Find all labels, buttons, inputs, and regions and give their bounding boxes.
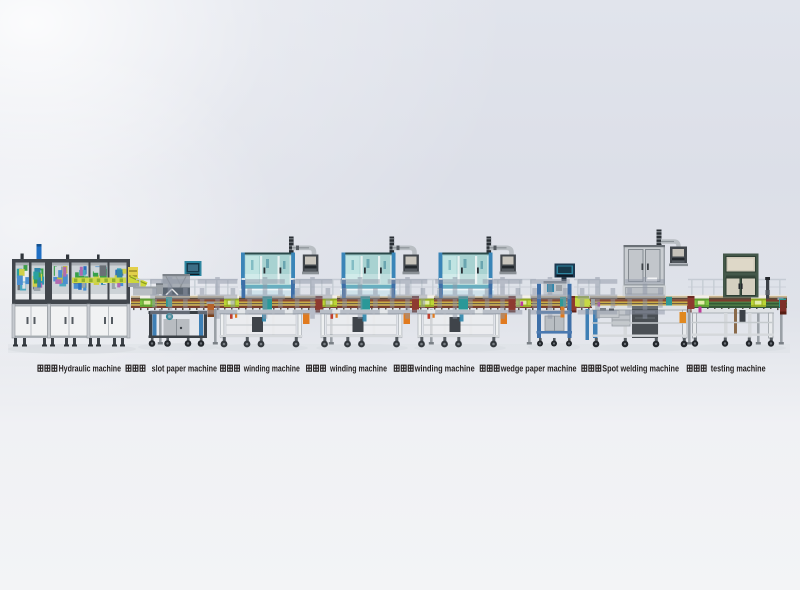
svg-text:Spot welding machine: Spot welding machine bbox=[602, 364, 679, 374]
svg-text:testing machine: testing machine bbox=[711, 364, 766, 374]
svg-text:winding machine: winding machine bbox=[414, 364, 475, 374]
svg-text:winding machine: winding machine bbox=[243, 364, 300, 374]
svg-text:Hydraulic machine: Hydraulic machine bbox=[59, 364, 121, 374]
svg-text:wedge paper machine: wedge paper machine bbox=[500, 364, 577, 374]
svg-text:winding machine: winding machine bbox=[329, 364, 387, 374]
svg-text:slot paper machine: slot paper machine bbox=[152, 364, 217, 374]
